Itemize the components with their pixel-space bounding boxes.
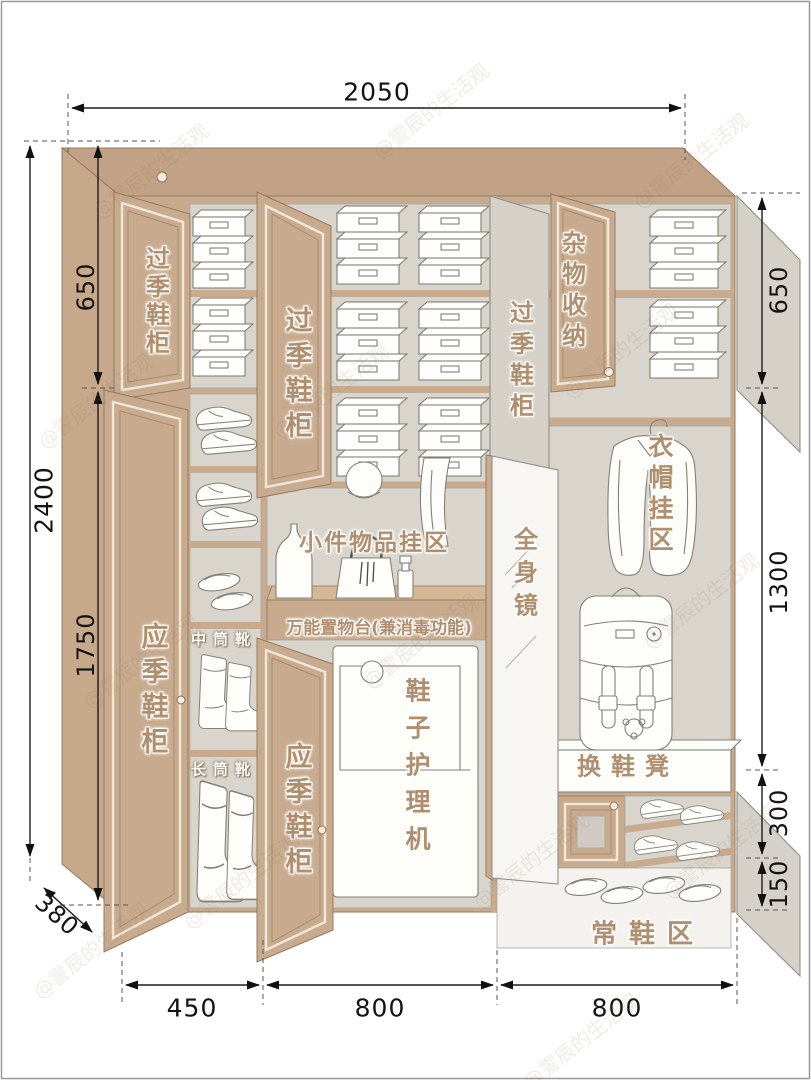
dim-right-bottom: 150: [765, 860, 793, 909]
label-misc-storage: 杂物收纳: [555, 230, 590, 354]
dim-total-width: 2050: [343, 78, 411, 107]
label-offseason-right: 过季鞋柜: [503, 300, 538, 424]
drawer: [557, 796, 625, 868]
label-daily-shoes: 常鞋区: [591, 914, 705, 951]
backpack-icon: [580, 588, 672, 750]
spray-bottle-icon: [398, 556, 413, 598]
dim-left-top: 650: [72, 263, 100, 312]
label-coat-zone: 衣帽挂区: [641, 433, 677, 557]
dim-right-lower: 300: [765, 789, 793, 838]
label-offseason-left: 过季鞋柜: [139, 246, 174, 358]
dim-bottom-left: 450: [167, 994, 218, 1023]
label-shoe-care: 鞋子护理机: [398, 678, 434, 863]
hat-icon: [346, 462, 382, 498]
label-mirror: 全身镜: [507, 527, 542, 626]
door-mirror: [486, 455, 558, 884]
label-inseason-left: 应季鞋柜: [133, 622, 172, 762]
label-offseason-mid: 过季鞋柜: [277, 306, 316, 446]
label-small-items: 小件物品挂区: [299, 523, 449, 557]
dim-right-top: 650: [765, 266, 793, 315]
label-utility-counter: 万能置物台(兼消毒功能): [286, 614, 472, 639]
label-tall-boots: 长筒靴: [191, 759, 257, 780]
door-top-right-open: [737, 196, 800, 452]
dim-bottom-right: 800: [592, 994, 643, 1023]
dim-bottom-middle: 800: [355, 994, 406, 1023]
dim-left-bottom: 1750: [72, 612, 100, 677]
dim-right-middle: 1300: [765, 549, 793, 614]
label-inseason-mid: 应季鞋柜: [277, 742, 316, 882]
shoe-cabinet-diagram: 2050 2400 650 1750 650 1300 300 150 450 …: [0, 0, 811, 1080]
dim-total-height: 2400: [30, 466, 59, 534]
label-mid-boots: 中筒靴: [191, 629, 257, 650]
label-bench: 换鞋凳: [577, 747, 679, 782]
